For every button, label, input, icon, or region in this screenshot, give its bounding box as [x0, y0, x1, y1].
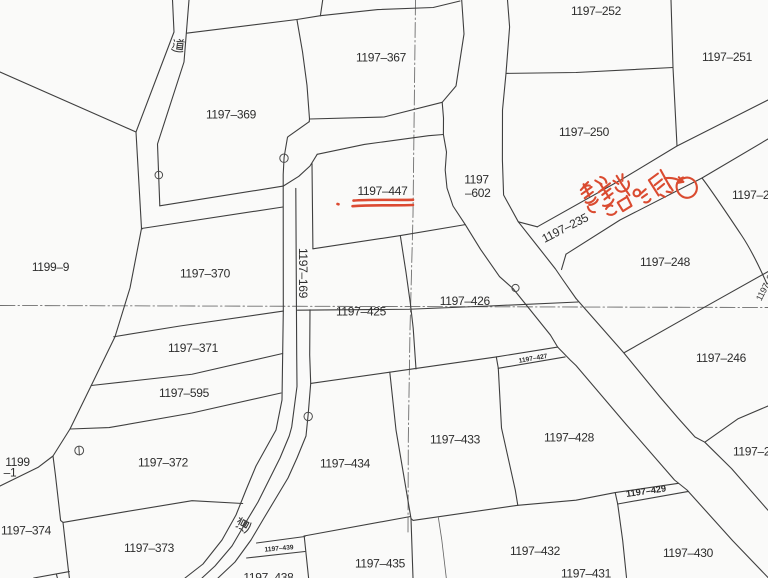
svg-text:1197–371: 1197–371 [168, 341, 219, 355]
svg-text:1197: 1197 [464, 173, 489, 187]
svg-text:1197–373: 1197–373 [124, 541, 175, 555]
svg-text:1197–374: 1197–374 [1, 524, 52, 538]
svg-text:1197–251: 1197–251 [702, 50, 753, 64]
svg-text:–602: –602 [465, 186, 491, 200]
svg-text:1197–595: 1197–595 [159, 386, 210, 400]
svg-text:1197–433: 1197–433 [430, 433, 481, 447]
svg-text:1197–447: 1197–447 [357, 184, 408, 198]
svg-text:1197–246: 1197–246 [696, 351, 747, 365]
svg-text:1197–369: 1197–369 [206, 107, 257, 121]
svg-text:1197–428: 1197–428 [544, 431, 595, 445]
svg-text:1197–370: 1197–370 [180, 267, 231, 281]
svg-text:1197–425: 1197–425 [336, 305, 387, 319]
svg-text:1197–372: 1197–372 [138, 455, 189, 469]
svg-text:1197–434: 1197–434 [320, 457, 371, 471]
svg-text:1199–9: 1199–9 [32, 260, 70, 274]
svg-text:1197–426: 1197–426 [440, 294, 491, 308]
svg-text:1197–430: 1197–430 [663, 546, 714, 560]
svg-text:1197–247: 1197–247 [733, 445, 768, 459]
svg-text:1197–252: 1197–252 [571, 4, 622, 18]
svg-text:1197–169: 1197–169 [296, 248, 310, 299]
svg-text:1197–249: 1197–249 [732, 188, 768, 202]
svg-text:1197–431: 1197–431 [561, 567, 612, 578]
svg-text:1197–432: 1197–432 [510, 544, 561, 558]
svg-text:1197–248: 1197–248 [640, 255, 691, 269]
svg-text:1197–438: 1197–438 [243, 571, 294, 578]
svg-text:1197–435: 1197–435 [355, 557, 406, 571]
svg-text:–1: –1 [4, 465, 17, 479]
svg-text:1197–367: 1197–367 [356, 51, 407, 65]
svg-text:1197–250: 1197–250 [559, 125, 610, 139]
